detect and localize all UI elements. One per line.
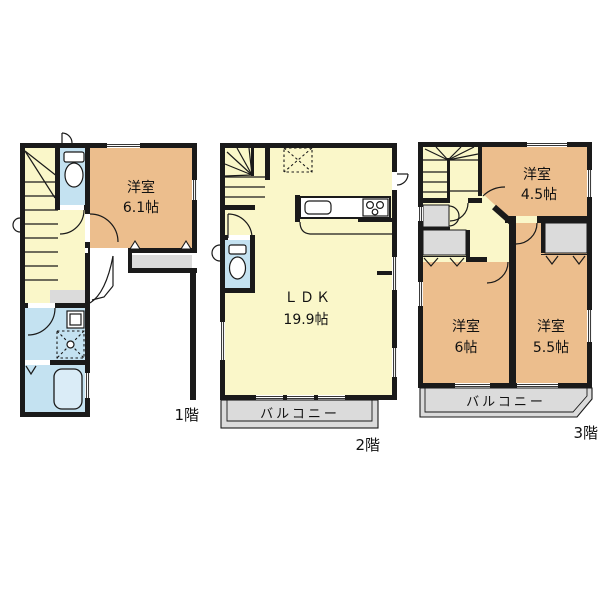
floor3-label: 3階: [573, 424, 598, 442]
bedroom-1f: [90, 148, 192, 248]
entrance-door-1f: [90, 256, 113, 303]
balcony-label: バルコニー: [466, 395, 546, 410]
floor1-label: 1階: [174, 406, 199, 424]
closet-hall-3f: [423, 205, 449, 227]
floor3-plan: バルコニー 洋室 4.5帖 洋室 6帖 洋室 5.5帖 3階: [418, 142, 598, 442]
sink-icon: [305, 201, 331, 214]
exterior-arc-top-1f: [62, 133, 72, 143]
toilet-icon: [64, 152, 84, 187]
room-label: 洋室: [523, 166, 551, 183]
floor2-label: 2階: [355, 436, 380, 454]
room-label: ＬＤＫ: [284, 290, 332, 306]
balcony-label: バルコニー: [260, 407, 340, 422]
exterior-vent-left-2f: [212, 245, 220, 261]
balcony-2f: バルコニー: [221, 400, 378, 428]
closet-55-3f: [545, 223, 587, 253]
room-size-label: 19.9帖: [283, 312, 328, 328]
step-1f: [50, 290, 85, 303]
room-label: 洋室: [537, 318, 565, 335]
room-size-label: 6.1帖: [123, 200, 159, 216]
washbasin-icon: [67, 311, 84, 328]
bathtub-icon: [54, 369, 82, 409]
room-size-label: 5.5帖: [533, 340, 569, 356]
floorplan-svg: 洋室 6.1帖 1階: [0, 0, 600, 599]
room-size-label: 6帖: [455, 340, 478, 356]
toilet-icon: [229, 245, 246, 279]
closet-6-3f: [423, 230, 466, 255]
boundary-wall-1f: [190, 273, 196, 400]
porch-1f: [132, 255, 192, 268]
room-label: 洋室: [127, 179, 155, 196]
room-size-label: 4.5帖: [521, 187, 557, 203]
room-label: 洋室: [452, 318, 480, 335]
floor2-plan: バルコニー ＬＤＫ 19.9帖 2階: [212, 143, 408, 454]
balcony-3f: バルコニー: [420, 388, 592, 417]
floor1-plan: 洋室 6.1帖 1階: [13, 133, 199, 424]
exterior-vent-left-1f: [13, 218, 20, 232]
floorplan-canvas: 洋室 6.1帖 1階: [0, 0, 600, 599]
stove-icon: [363, 199, 388, 216]
service-door-2f: [397, 174, 408, 185]
